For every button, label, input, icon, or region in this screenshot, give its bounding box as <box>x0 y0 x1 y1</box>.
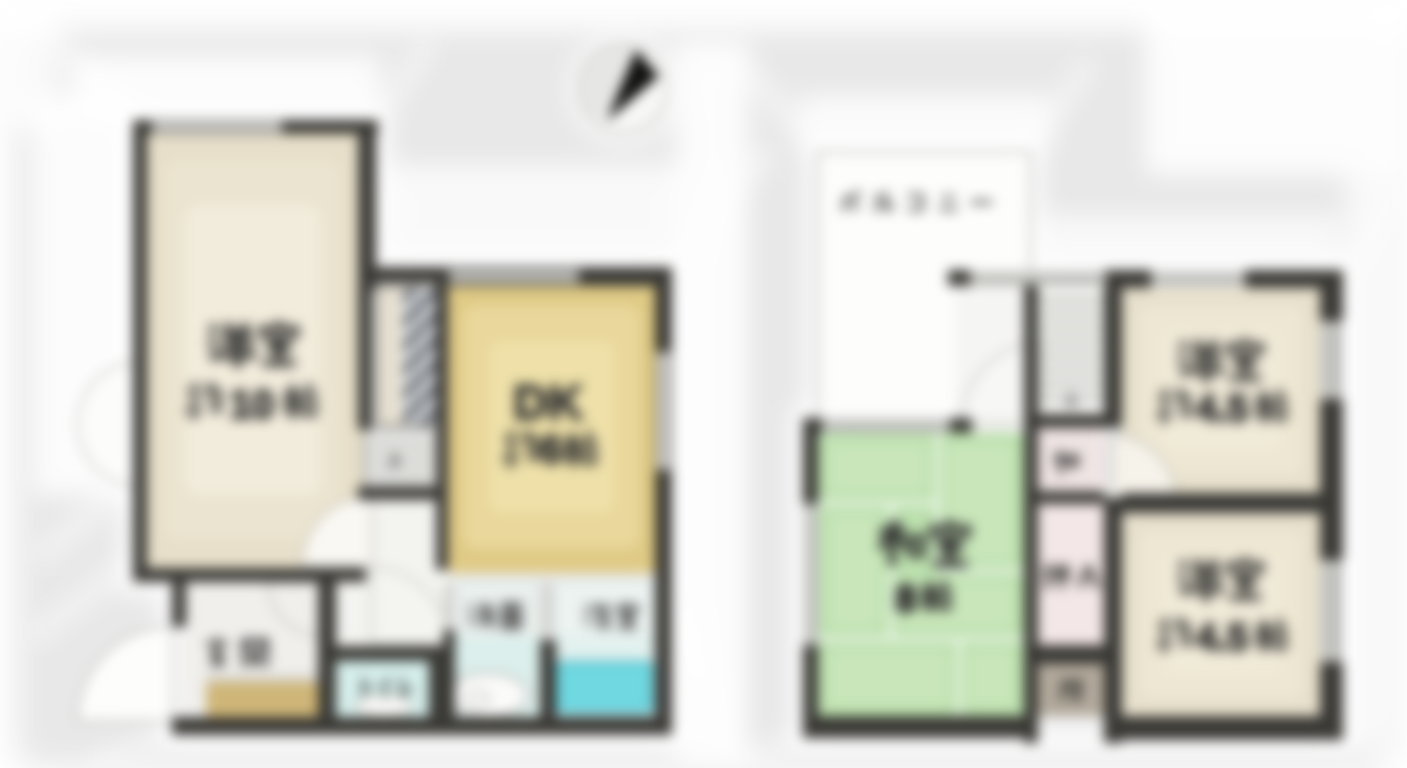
svg-text:DK: DK <box>513 377 583 430</box>
svg-text:4.5: 4.5 <box>1196 617 1249 659</box>
svg-text:6: 6 <box>540 428 562 472</box>
svg-text:8: 8 <box>896 578 916 619</box>
svg-text:4.5: 4.5 <box>1196 388 1249 430</box>
svg-text:10: 10 <box>230 383 275 427</box>
